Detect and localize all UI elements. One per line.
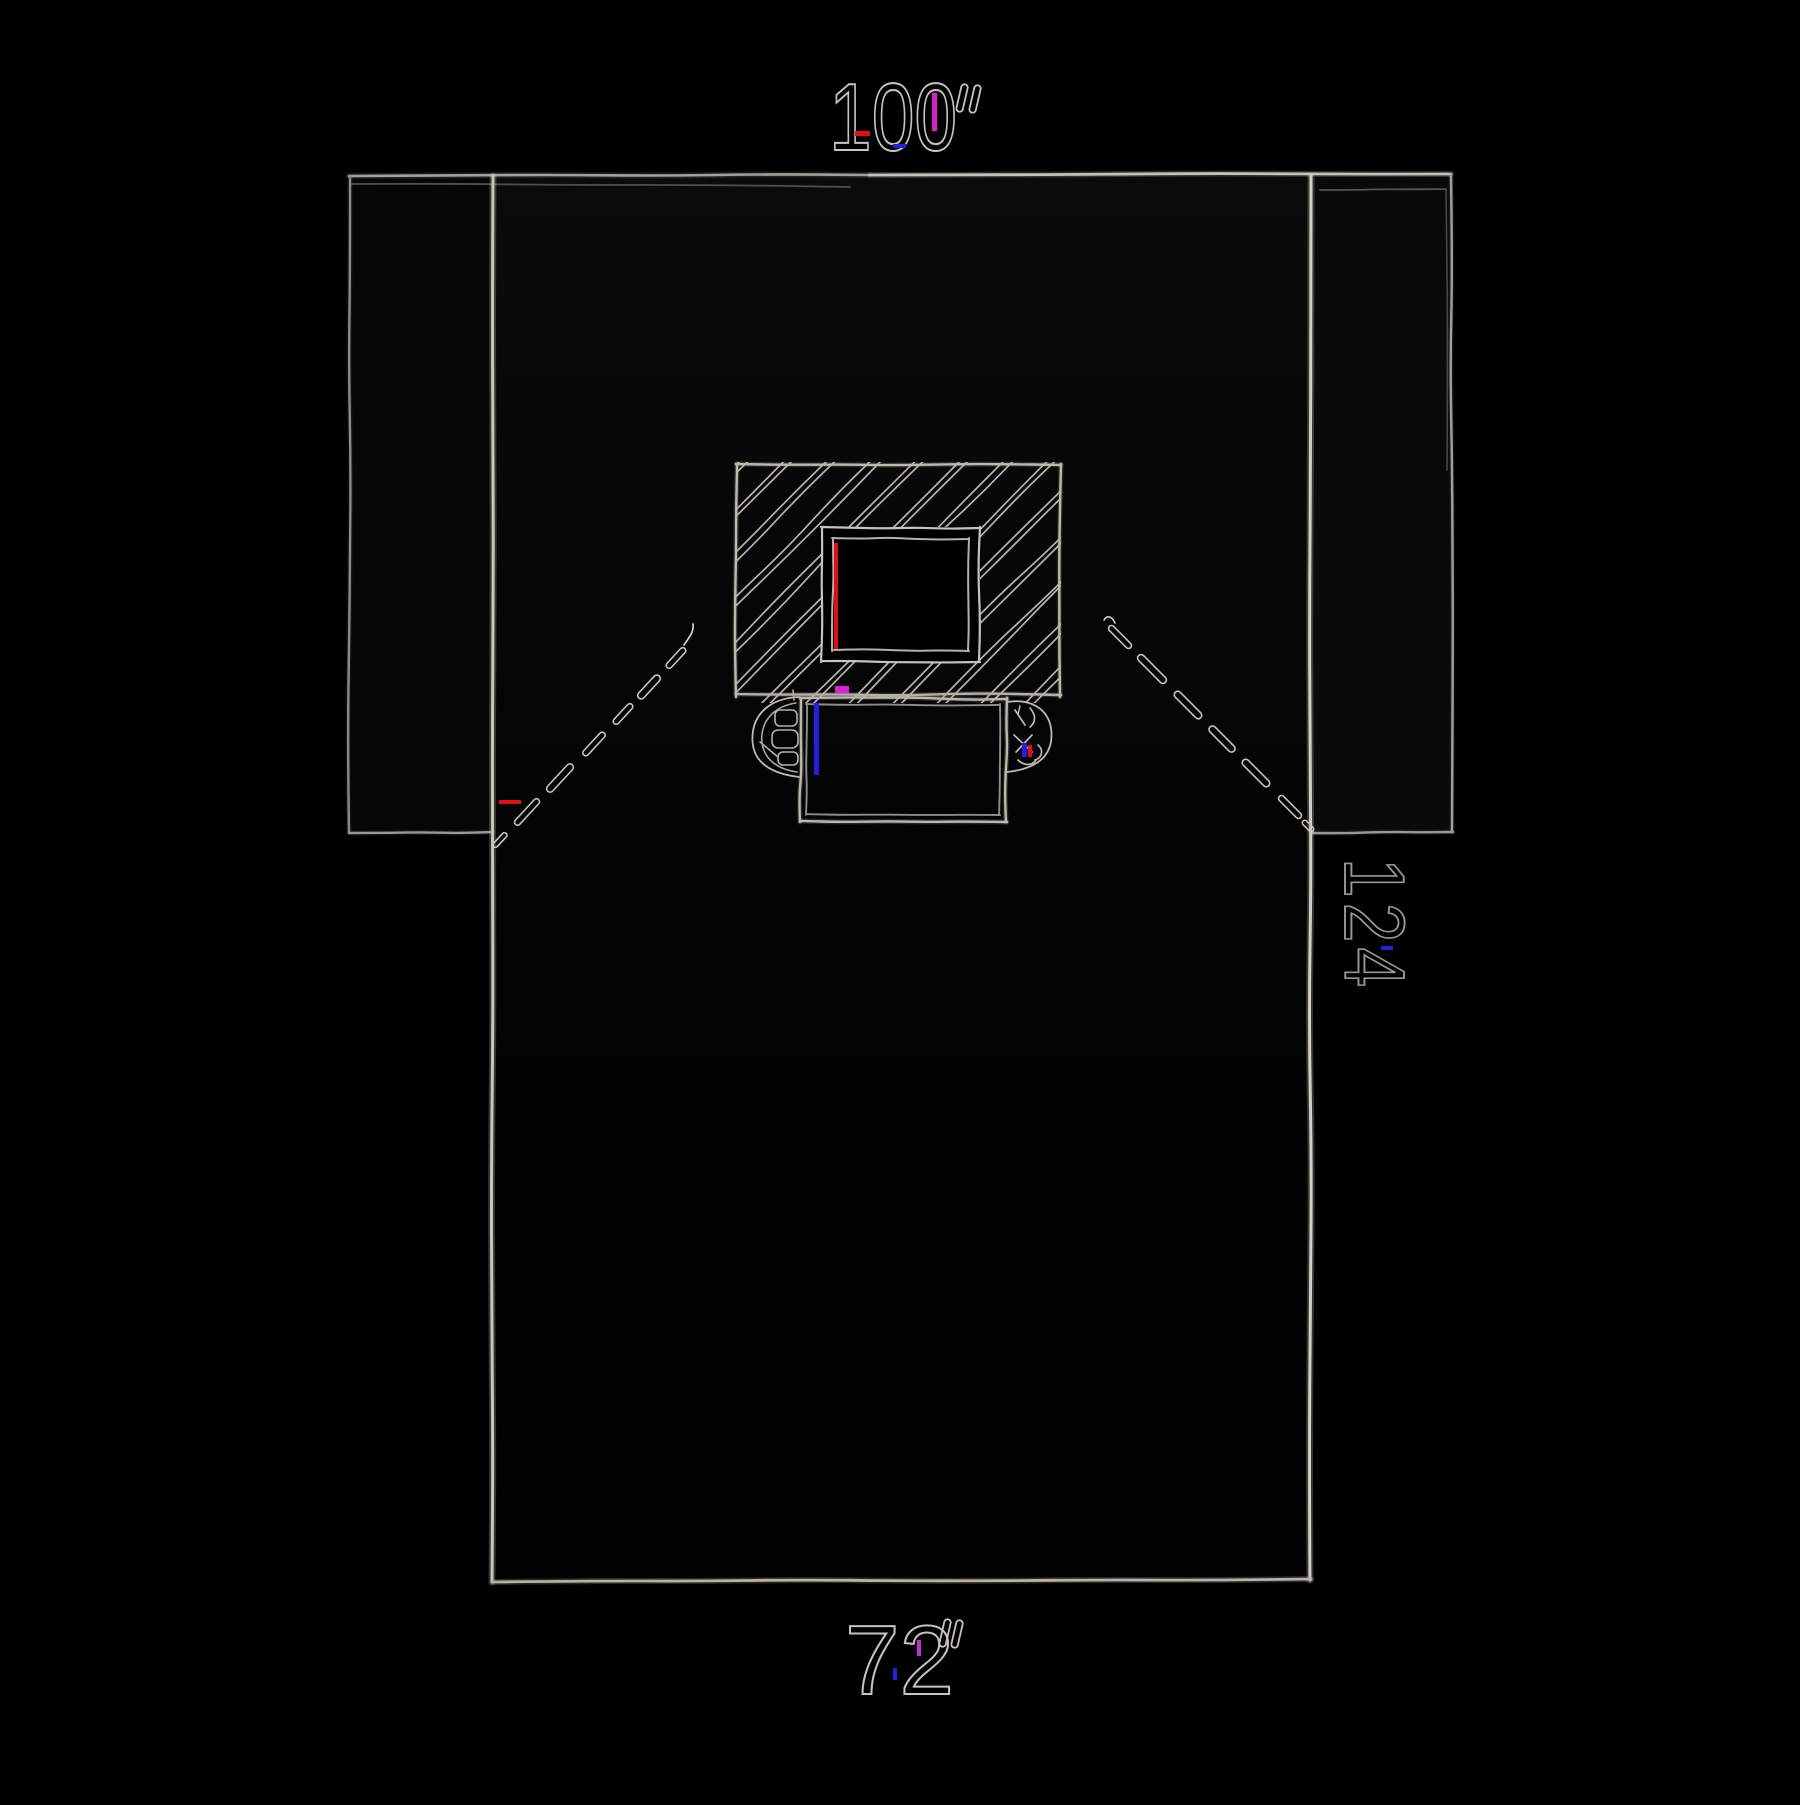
svg-text:100: 100 <box>829 64 957 171</box>
svg-text:72: 72 <box>845 1605 954 1715</box>
svg-text:124: 124 <box>1327 858 1422 992</box>
